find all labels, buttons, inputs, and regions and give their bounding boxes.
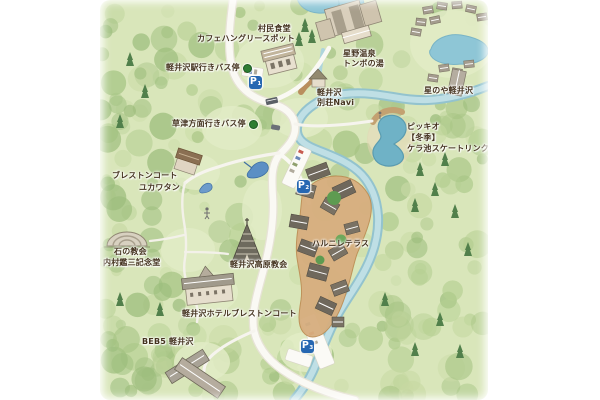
label-hoshinoya: 星のや軽井沢 (424, 86, 473, 96)
parking-p2-marker: P2 (297, 180, 310, 193)
p3-letter: P (302, 340, 309, 352)
hoshino-area-illustrated-map: 村民食堂 カフェハングリースポット 星野温泉 トンボの湯 軽井沢駅行きバス停 草… (0, 0, 600, 400)
label-sonmin-shokudo: 村民食堂 (258, 24, 291, 34)
label-picchio-3: ケラ池スケートリンク (407, 144, 489, 154)
p2-letter: P (298, 180, 305, 192)
label-picchio-2: 【冬季】 (407, 133, 440, 143)
bus-stop-dot (243, 64, 252, 73)
label-hoshino-onsen-2: トンボの湯 (343, 59, 384, 69)
label-besso-navi-2: 別荘Navi (317, 98, 354, 108)
label-besso-navi-1: 軽井沢 (317, 88, 342, 98)
label-bleston-court-2: ユカワタン (139, 183, 180, 193)
label-hoshino-onsen-1: 星野温泉 (343, 49, 376, 59)
label-beb5: BEB5 軽井沢 (142, 337, 194, 347)
label-stone-church-2: 内村鑑三記念堂 (103, 258, 160, 268)
bus-stop-kusatsu-label: 草津方面行きバス停 (172, 119, 246, 129)
bus-stop-kusatsu: 草津方面行きバス停 (172, 119, 258, 129)
label-picchio-1: ピッキオ (407, 122, 440, 132)
label-harunire-terrace: ハルニレテラス (312, 239, 369, 249)
label-kogen-church: 軽井沢高原教会 (230, 260, 287, 270)
label-hotel-bleston-court: 軽井沢ホテルブレストンコート (182, 309, 297, 319)
p3-number: 3 (309, 346, 313, 352)
parking-p1-marker: P1 (249, 76, 262, 89)
p1-letter: P (250, 76, 257, 88)
bus-stop-karuizawa-station: 軽井沢駅行きバス停 (166, 63, 252, 73)
parking-p3-marker: P3 (301, 340, 314, 353)
map-illustration (0, 0, 600, 400)
label-stone-church-1: 石の教会 (114, 247, 147, 257)
label-cafe-hungry-spot: カフェハングリースポット (197, 34, 295, 44)
bus-stop-karuizawa-label: 軽井沢駅行きバス停 (166, 63, 240, 73)
p1-number: 1 (257, 82, 261, 88)
bus-stop-dot (249, 120, 258, 129)
p2-number: 2 (305, 186, 309, 192)
label-bleston-court-1: ブレストンコート (112, 171, 178, 181)
